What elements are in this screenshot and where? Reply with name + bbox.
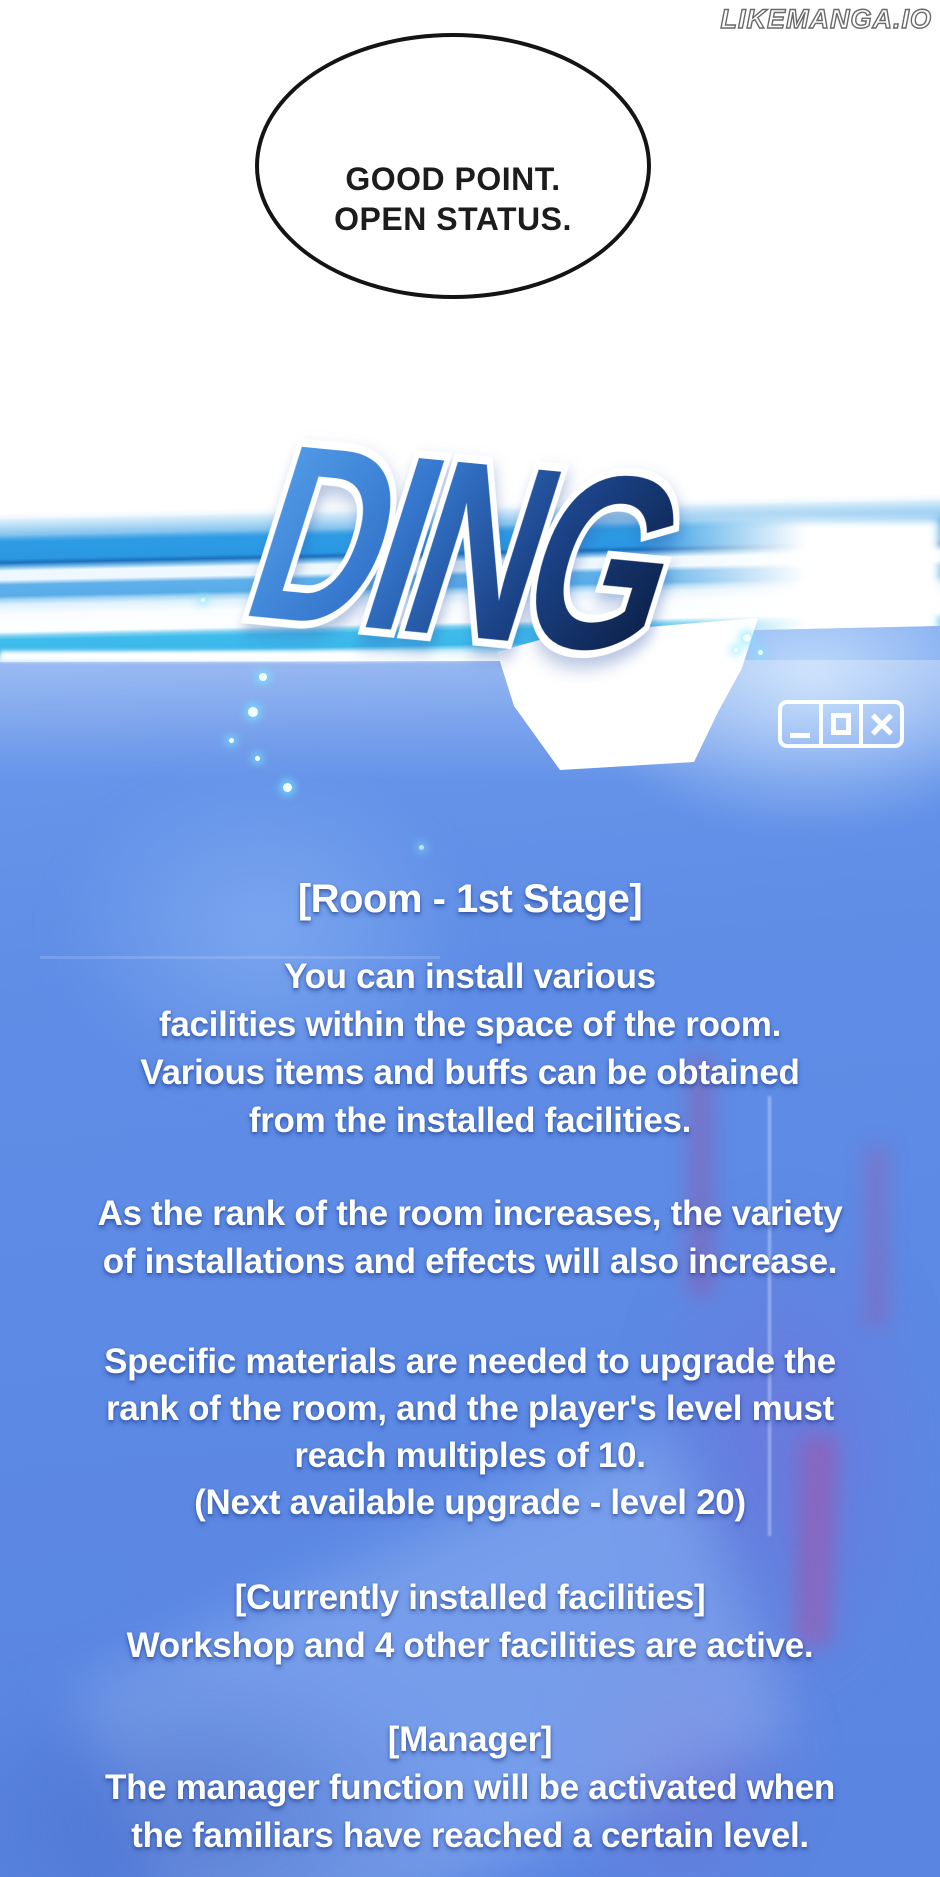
paragraph-manager-line: the familiars have reached a certain lev… <box>20 1812 920 1860</box>
room-stage-title: [Room - 1st Stage] <box>20 872 920 926</box>
paragraph-upgrade-materials-line: reach multiples of 10. <box>20 1432 920 1479</box>
window-text-layer: [Room - 1st Stage] You can install vario… <box>0 0 940 1877</box>
paragraph-manager-line: [Manager] <box>20 1716 920 1764</box>
paragraph-installed-facilities-line: Workshop and 4 other facilities are acti… <box>20 1622 920 1670</box>
paragraph-manager: [Manager]The manager function will be ac… <box>20 1716 920 1860</box>
paragraph-manager-line: The manager function will be activated w… <box>20 1764 920 1812</box>
paragraph-install-facilities: You can install variousfacilities within… <box>20 953 920 1145</box>
paragraph-install-facilities-line: You can install various <box>20 953 920 1001</box>
paragraph-installed-facilities-line: [Currently installed facilities] <box>20 1574 920 1622</box>
manga-page: LikeManga.io GOOD POINT.OPEN STATUS. DIN… <box>0 0 940 1877</box>
paragraph-install-facilities-line: from the installed facilities. <box>20 1097 920 1145</box>
paragraph-install-facilities-line: facilities within the space of the room. <box>20 1001 920 1049</box>
paragraph-upgrade-materials-line: rank of the room, and the player's level… <box>20 1385 920 1432</box>
paragraph-rank-increase: As the rank of the room increases, the v… <box>20 1190 920 1286</box>
paragraph-installed-facilities: [Currently installed facilities]Workshop… <box>20 1574 920 1670</box>
paragraph-rank-increase-line: As the rank of the room increases, the v… <box>20 1190 920 1238</box>
paragraph-rank-increase-line: of installations and effects will also i… <box>20 1238 920 1286</box>
paragraph-upgrade-materials: Specific materials are needed to upgrade… <box>20 1338 920 1526</box>
paragraph-install-facilities-line: Various items and buffs can be obtained <box>20 1049 920 1097</box>
paragraph-upgrade-materials-line: Specific materials are needed to upgrade… <box>20 1338 920 1385</box>
paragraph-upgrade-materials-line: (Next available upgrade - level 20) <box>20 1479 920 1526</box>
